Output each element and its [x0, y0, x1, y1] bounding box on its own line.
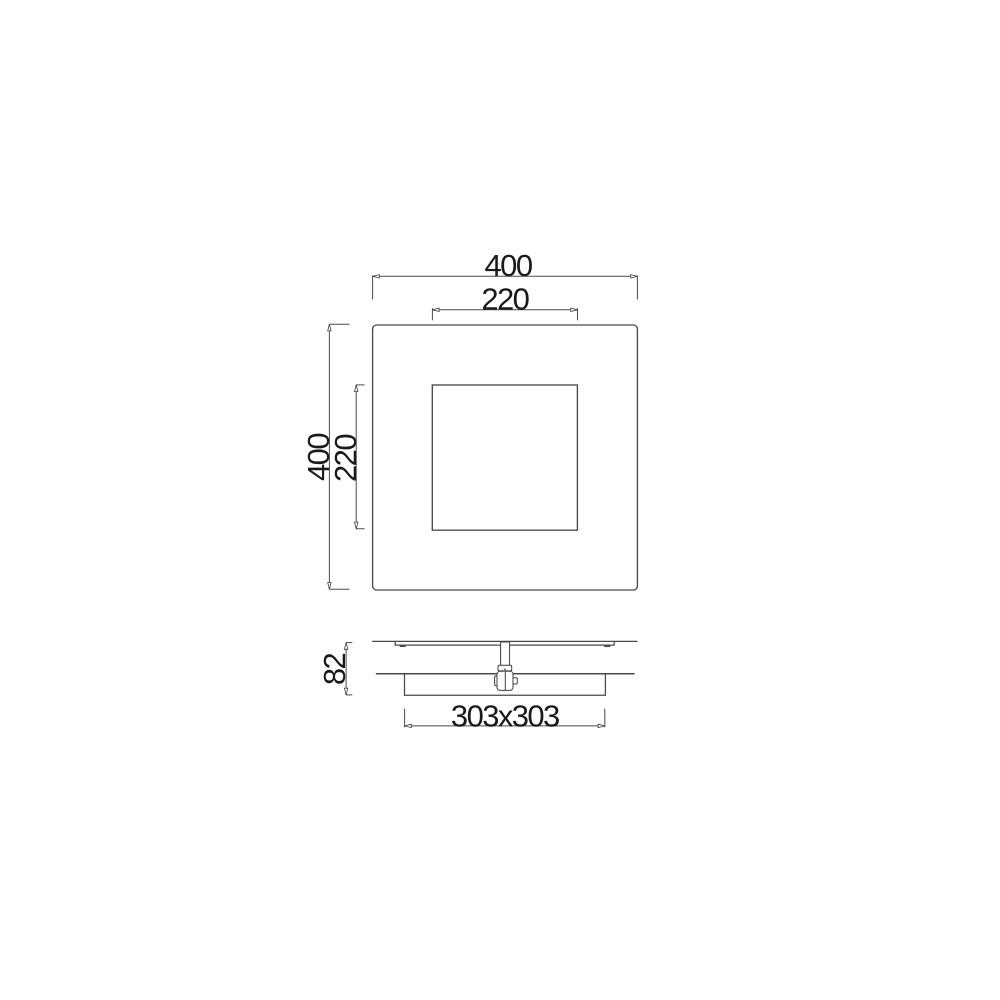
svg-text:400: 400: [485, 248, 533, 283]
svg-text:303x303: 303x303: [451, 698, 559, 733]
svg-text:220: 220: [328, 434, 363, 482]
svg-text:220: 220: [481, 281, 529, 316]
svg-text:82: 82: [317, 654, 352, 686]
